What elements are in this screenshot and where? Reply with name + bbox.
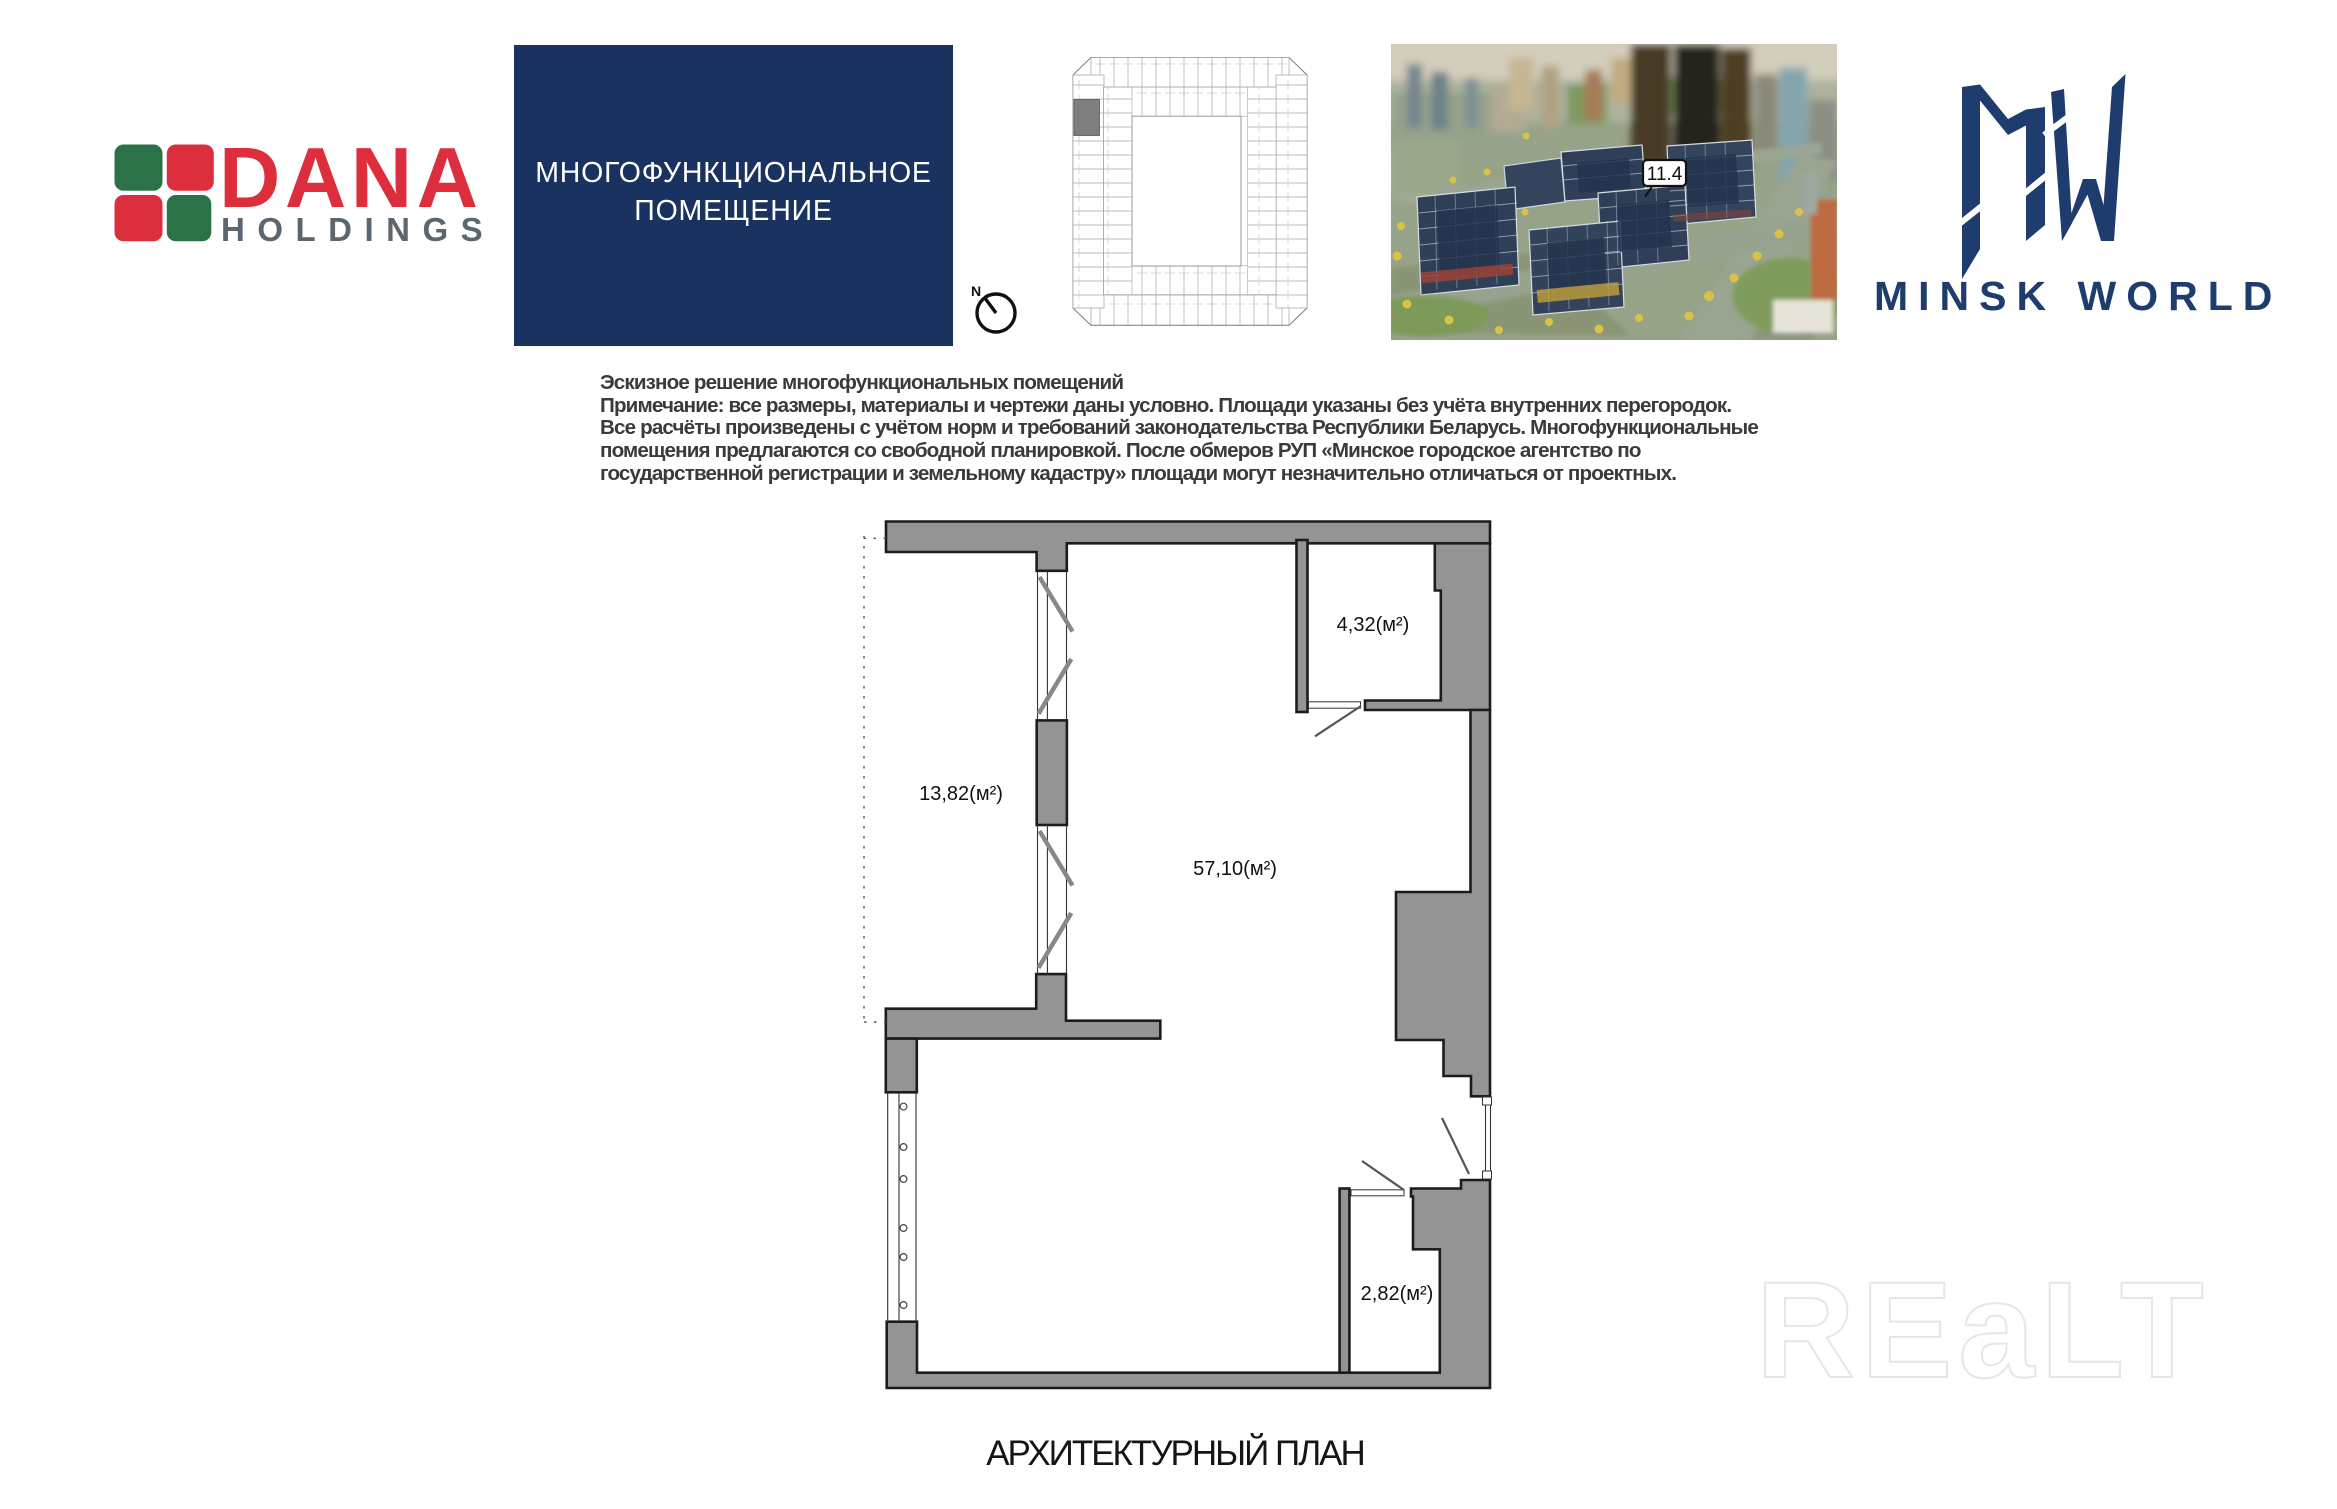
svg-text:2,82(м²): 2,82(м²) xyxy=(1361,1283,1434,1305)
svg-text:4,32(м²): 4,32(м²) xyxy=(1337,614,1410,636)
svg-text:57,10(м²): 57,10(м²) xyxy=(1193,858,1277,880)
svg-text:11.4: 11.4 xyxy=(1647,164,1683,185)
svg-text:13,82(м²): 13,82(м²) xyxy=(919,783,1003,805)
svg-text:HOLDINGS: HOLDINGS xyxy=(221,211,495,248)
svg-text:N: N xyxy=(971,283,981,299)
